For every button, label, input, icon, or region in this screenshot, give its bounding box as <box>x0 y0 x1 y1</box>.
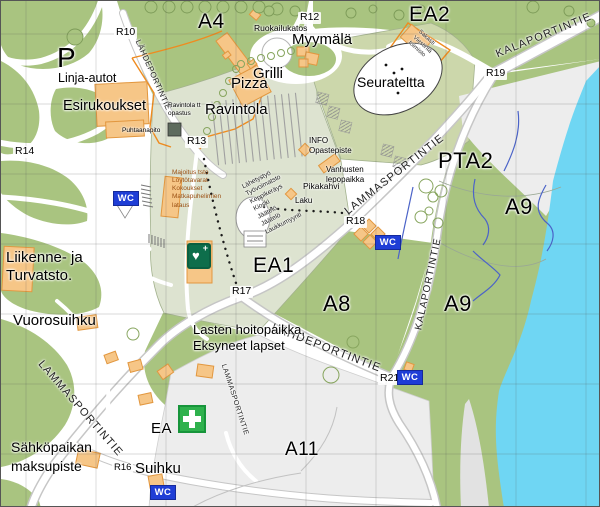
road-node-r18: R18 <box>344 216 367 228</box>
label-ravintola: Ravintola <box>205 101 268 119</box>
wc-badge-suihku: WC <box>150 485 176 500</box>
label-linja-autot: Linja-autot <box>58 71 116 86</box>
area-label-a4: A4 <box>198 9 225 34</box>
wc-badge-south: WC <box>397 370 423 385</box>
area-label-pta2: PTA2 <box>438 148 493 174</box>
area-label-ea: EA <box>151 420 172 438</box>
area-label-ea1: EA1 <box>253 253 294 278</box>
label-esirukoukset: Esirukoukset <box>63 98 146 115</box>
first-aid-cross-icon <box>178 405 206 433</box>
defibrillator-icon: ♥ + <box>187 243 211 269</box>
road-node-r17: R17 <box>230 286 253 298</box>
label-majoitus-cluster: Majoitus tsto Löytötavarat Kokoukset Mat… <box>172 169 221 210</box>
label-suihku: Suihku <box>135 460 181 478</box>
area-label-a9-south: A9 <box>444 291 472 317</box>
road-node-r19: R19 <box>484 68 507 80</box>
area-label-p: P <box>57 41 76 75</box>
area-label-a11: A11 <box>285 439 319 462</box>
label-pizza: Pizza <box>231 75 268 93</box>
label-pikakahvi: Pikakahvi <box>303 181 339 191</box>
area-label-a9-north: A9 <box>505 194 533 220</box>
label-laku: Laku <box>295 196 312 206</box>
label-liikenne-turvatsto: Liikenne- ja Turvatsto. <box>6 249 83 285</box>
road-node-r16: R16 <box>112 463 133 473</box>
event-map: P A4 EA2 PTA2 A9 A9 A8 EA1 A11 EA R10 R1… <box>0 0 600 507</box>
heart-glyph: ♥ <box>192 249 200 262</box>
label-vuorosuihku: Vuorosuihku <box>13 312 96 330</box>
label-ravintola-opastus: Ravintola tt opastus <box>168 102 201 118</box>
label-sahkopaikan-maksupiste: Sähköpaikan maksupiste <box>11 438 92 476</box>
plus-glyph: + <box>203 244 208 253</box>
area-label-a8: A8 <box>323 291 351 317</box>
label-lasten-hoitopaikka: Lasten hoitopaikka, Eksyneet lapset <box>193 322 305 353</box>
label-seurateltta: Seurateltta <box>357 74 425 91</box>
road-node-r13: R13 <box>185 136 208 148</box>
road-node-r14: R14 <box>13 146 36 158</box>
road-node-r12: R12 <box>298 12 321 24</box>
wc-badge-northwest: WC <box>113 191 139 206</box>
label-info-opastepiste: INFO Opastepiste <box>309 136 352 156</box>
area-label-ea2: EA2 <box>409 2 450 27</box>
label-myymala: Myymälä <box>292 31 352 49</box>
label-puhtaanapito: Puhtaanapito <box>122 127 160 135</box>
wc-badge-center: WC <box>375 235 401 250</box>
road-node-r10: R10 <box>114 27 137 39</box>
